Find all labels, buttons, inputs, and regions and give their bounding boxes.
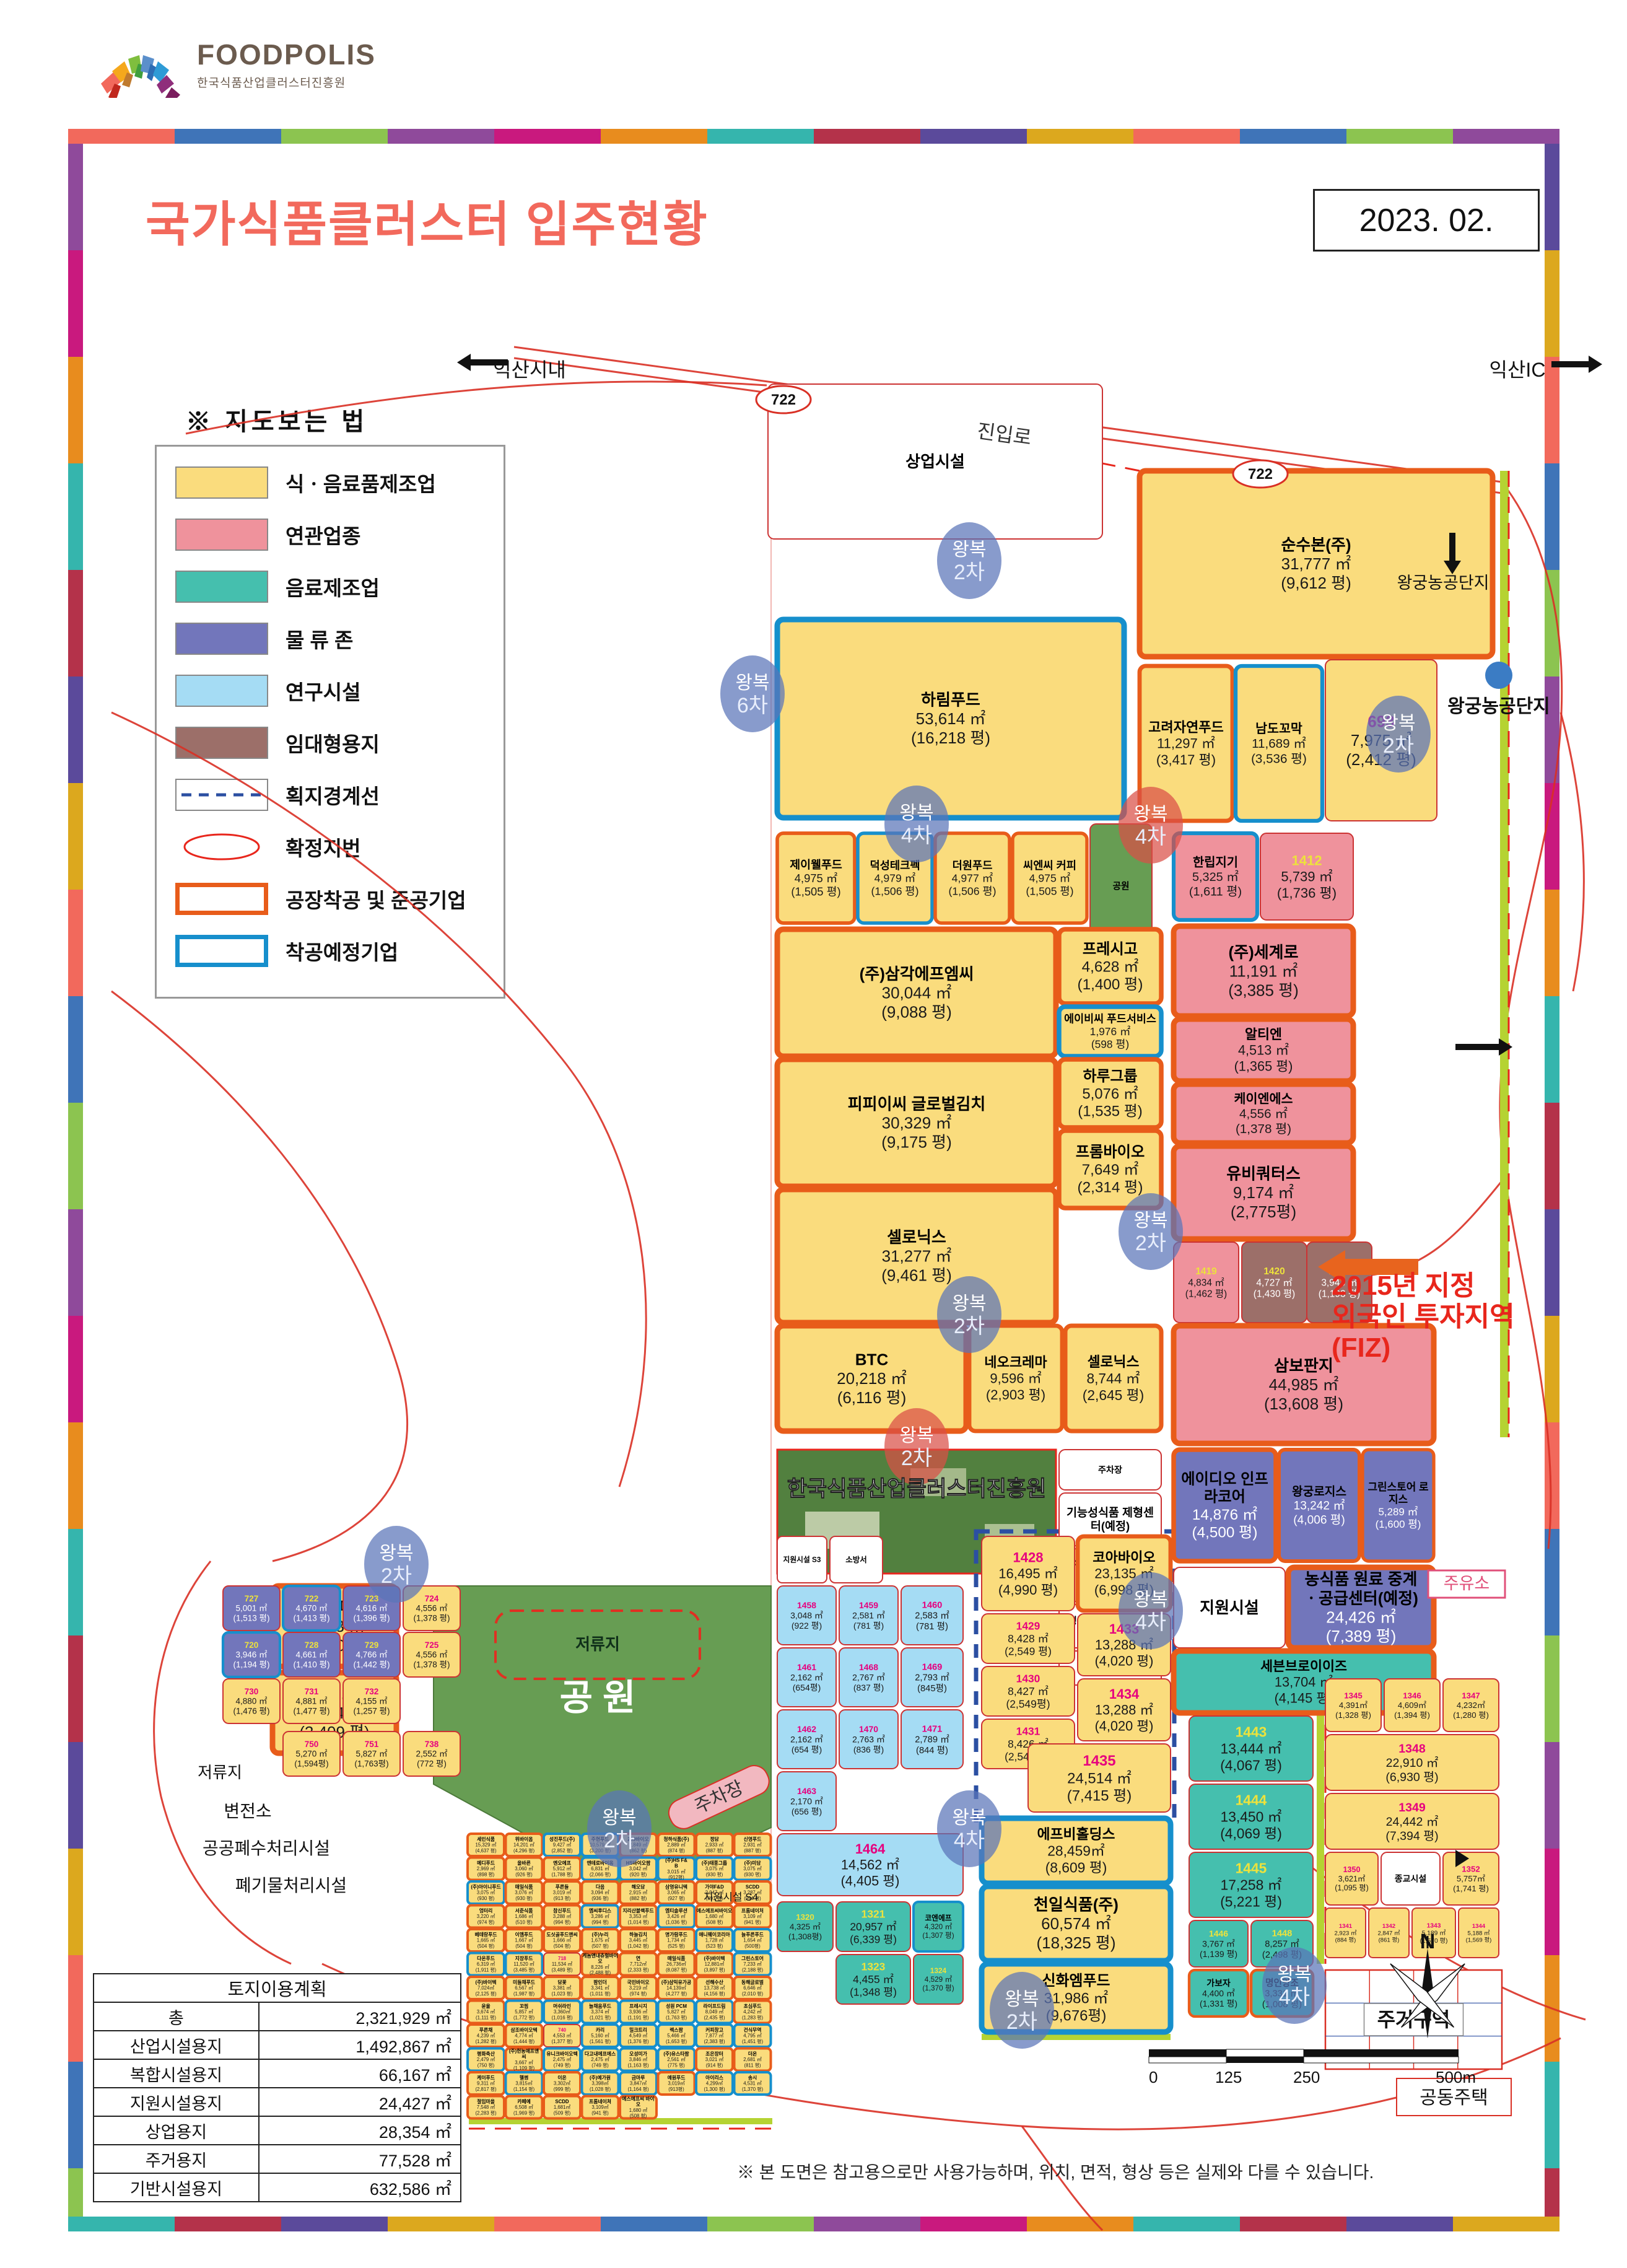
svg-text:5,827 ㎡: 5,827 ㎡ (667, 2009, 686, 2015)
svg-text:4차: 4차 (954, 1829, 985, 1852)
parcel-카리: 카리5,160 ㎡(1,561 평) (582, 2025, 619, 2047)
svg-text:예원푸드: 예원푸드 (668, 2075, 686, 2081)
svg-text:(주)태풍그룹: (주)태풍그룹 (702, 1860, 727, 1866)
parcel-삼영유니텍: 삼영유니텍3,065 ㎡(927 평) (658, 1881, 695, 1904)
parcel-731: 7314,881 ㎡(1,477 평) (283, 1679, 340, 1723)
svg-text:(749 평): (749 평) (554, 2062, 571, 2068)
svg-text:(861 평): (861 평) (1379, 1937, 1400, 1944)
svg-text:4,727 ㎡: 4,727 ㎡ (1256, 1277, 1293, 1288)
svg-text:(1,477 평): (1,477 평) (293, 1707, 329, 1716)
svg-text:(16,218 평): (16,218 평) (911, 729, 990, 747)
svg-text:저류지: 저류지 (198, 1763, 242, 1782)
svg-text:푸른들: 푸른들 (556, 1885, 569, 1890)
map-label: 공공폐수처리시설 (203, 1839, 330, 1858)
svg-text:왕복: 왕복 (379, 1543, 413, 1564)
svg-text:제이웰푸드: 제이웰푸드 (790, 858, 842, 871)
svg-text:(1,741 평): (1,741 평) (1453, 1884, 1489, 1893)
svg-text:(3,417 평): (3,417 평) (1156, 752, 1216, 768)
svg-text:(930 평): (930 평) (515, 1895, 533, 1901)
svg-text:셀로닉스: 셀로닉스 (887, 1228, 946, 1246)
svg-text:셀로닉스: 셀로닉스 (1088, 1354, 1140, 1370)
svg-text:1469: 1469 (922, 1662, 943, 1672)
svg-text:2차: 2차 (1135, 1232, 1166, 1255)
parcel-코엔에프: 코엔에프4,320 ㎡(1,307 평) (914, 1902, 963, 1951)
svg-text:(1,376 평): (1,376 평) (627, 2038, 649, 2044)
svg-text:머쉬라인: 머쉬라인 (553, 2003, 571, 2009)
parcel-1341: 13412,923 ㎡(884 평) (1325, 1908, 1366, 1958)
svg-text:하림푸드: 하림푸드 (921, 690, 980, 709)
parcel-올바른: 올바른3,060 ㎡(926 평) (506, 1858, 543, 1880)
parcel-SCDD: SCDD1,681㎡(509 평) (544, 2096, 580, 2119)
svg-text:그린스토어 로: 그린스토어 로 (1367, 1481, 1428, 1493)
svg-text:(508 평): (508 평) (706, 1919, 723, 1925)
svg-text:4,553 ㎡: 4,553 ㎡ (553, 2033, 572, 2039)
parcel-프롬네이처: 프롬네이처3,109 ㎡(941 평) (735, 1906, 771, 1928)
svg-text:한국식품산업클러스터진흥원: 한국식품산업클러스터진흥원 (787, 1477, 1047, 1501)
svg-text:1344: 1344 (1472, 1923, 1486, 1930)
road-width-badge: 왕복4차 (1119, 787, 1183, 864)
svg-text:(4,637 평): (4,637 평) (475, 1847, 497, 1854)
svg-text:(1,969 평): (1,969 평) (513, 2109, 535, 2116)
svg-text:헬썸: 헬썸 (520, 2075, 528, 2081)
svg-text:5,001 ㎡: 5,001 ㎡ (235, 1604, 268, 1613)
svg-text:(1,378 평): (1,378 평) (413, 1614, 450, 1623)
svg-text:(2,852 평): (2,852 평) (551, 1847, 573, 1854)
svg-text:(2,333 평): (2,333 평) (627, 1966, 649, 1972)
svg-text:한립지기: 한립지기 (1193, 856, 1238, 870)
svg-text:(874 평): (874 평) (668, 1847, 685, 1854)
svg-text:(772 평): (772 평) (417, 1759, 447, 1769)
svg-text:남도꼬막: 남도꼬막 (1255, 722, 1302, 736)
parcel-1458: 14583,048 ㎡(922 평) (777, 1586, 836, 1645)
svg-text:(주)유스타팜: (주)유스타팜 (663, 2051, 689, 2057)
svg-text:4차: 4차 (1279, 1986, 1310, 2009)
parcel-송시: 송시4,531 ㎡(1,370 평) (735, 2072, 771, 2095)
svg-text:4,556 ㎡: 4,556 ㎡ (416, 1650, 448, 1660)
parcel-엠씨후디스: 엠씨후디스3,286 ㎡(994 평) (582, 1906, 619, 1928)
road-width-badge: 왕복2차 (937, 1276, 1001, 1353)
svg-text:(811 평): (811 평) (744, 2062, 761, 2068)
map-label: 주유소 (1428, 1570, 1505, 1598)
svg-text:(2,549 평): (2,549 평) (1005, 1645, 1052, 1658)
parcel-1430: 14308,427 ㎡(2,549평) (982, 1666, 1075, 1716)
parcel-1323: 13234,455 ㎡(1,348 평) (836, 1955, 910, 2004)
svg-text:애니웨이코리아: 애니웨이코리아 (699, 1932, 730, 1938)
svg-text:(1,476 평): (1,476 평) (233, 1707, 269, 1716)
svg-text:5,857 ㎡: 5,857 ㎡ (515, 2009, 533, 2015)
parcel-엠티솔루션: 엠티솔루션3,426 ㎡(1,036 평) (658, 1906, 695, 1928)
svg-text:13,242 ㎡: 13,242 ㎡ (1294, 1499, 1345, 1513)
svg-text:(920 평): (920 평) (630, 1871, 647, 1877)
map-label: 저류지 (198, 1763, 242, 1782)
svg-text:4,239 ㎡: 4,239 ㎡ (477, 2033, 495, 2039)
parcel-이온: 이온3,302㎡(999 평) (544, 2072, 580, 2095)
parcel-(주)유스타팜: (주)유스타팜2,561 ㎡(775 평) (658, 2049, 695, 2071)
svg-text:(2,188 평): (2,188 평) (742, 1966, 764, 1972)
svg-text:2,789 ㎡: 2,789 ㎡ (915, 1735, 949, 1745)
svg-text:(2,488 평): (2,488 평) (590, 1969, 611, 1976)
svg-text:3,019 ㎡: 3,019 ㎡ (553, 1890, 572, 1896)
svg-text:2,933 ㎡: 2,933 ㎡ (705, 1842, 724, 1848)
svg-text:(1,036 평): (1,036 평) (666, 1919, 687, 1925)
svg-text:(781 평): (781 평) (853, 1621, 884, 1631)
map-label: 한국식품산업클러스터진흥원 (787, 1477, 1047, 1501)
svg-text:(914 평): (914 평) (706, 2062, 723, 2068)
svg-text:프레시고: 프레시고 (1083, 941, 1138, 958)
land-table-value: 632,586 ㎡ (259, 2173, 461, 2202)
svg-text:2,475 ㎡: 2,475 ㎡ (591, 2057, 609, 2062)
svg-text:(656 평): (656 평) (792, 1806, 822, 1816)
svg-text:왕복: 왕복 (952, 1808, 986, 1828)
svg-text:(994 평): (994 평) (554, 1919, 571, 1925)
svg-text:조은장터: 조은장터 (705, 2051, 723, 2057)
wanggung-complex-dot (1485, 662, 1512, 689)
svg-text:4,320 ㎡: 4,320 ㎡ (925, 1923, 953, 1931)
svg-text:2,552 ㎡: 2,552 ㎡ (416, 1749, 448, 1759)
parcel-하루그룹: 하루그룹5,076 ㎡(1,535 평) (1059, 1059, 1161, 1127)
svg-text:공 원: 공 원 (560, 1678, 636, 1718)
svg-text:4,155 ㎡: 4,155 ㎡ (355, 1697, 388, 1706)
parcel-애니웨이코리아: 애니웨이코리아1,728 ㎡(523 평) (696, 1929, 733, 1951)
parcel-초심푸드: 초심푸드4,242 ㎡(1,283 평) (735, 2001, 771, 2023)
compass-north-label: N (1406, 1930, 1449, 1954)
svg-text:14,201 ㎡: 14,201 ㎡ (513, 1842, 534, 1848)
svg-text:(525 평): (525 평) (668, 1943, 685, 1949)
svg-text:연: 연 (636, 1955, 640, 1961)
svg-text:5,076 ㎡: 5,076 ㎡ (1082, 1085, 1138, 1102)
svg-text:(999 평): (999 평) (554, 2086, 571, 2092)
svg-text:ㆍ공급센터(예정): ㆍ공급센터(예정) (1304, 1589, 1418, 1608)
svg-text:해오담: 해오담 (632, 1884, 645, 1890)
svg-text:(2,314 평): (2,314 평) (1078, 1180, 1143, 1196)
svg-text:(1,095 평): (1,095 평) (1335, 1884, 1369, 1893)
svg-text:지장푸드: 지장푸드 (515, 1955, 533, 1961)
svg-text:2,561 ㎡: 2,561 ㎡ (667, 2057, 686, 2062)
parcel-커피창고: 커피창고7,877 ㎡(2,383 평) (696, 2025, 733, 2047)
svg-text:(2,435 평): (2,435 평) (704, 2014, 725, 2020)
svg-text:14,562 ㎡: 14,562 ㎡ (841, 1857, 899, 1873)
parcel-722: 7224,670 ㎡(1,413 평) (283, 1586, 340, 1631)
svg-text:1,976 ㎡: 1,976 ㎡ (1090, 1025, 1131, 1038)
svg-text:삼조바이오텍: 삼조바이오텍 (510, 2027, 537, 2033)
svg-text:6,508 ㎡: 6,508 ㎡ (515, 2104, 533, 2110)
parcel-헬썸: 헬썸3,815㎡(1,154 평) (506, 2072, 543, 2095)
cluster-map: 저류지상업시설순수본(주)31,777 ㎡(9,612 평)하림푸드53,614… (0, 0, 1627, 2268)
svg-text:6차: 6차 (737, 694, 768, 717)
svg-text:1448: 1448 (1272, 1929, 1293, 1938)
svg-text:2,583 ㎡: 2,583 ㎡ (915, 1611, 949, 1621)
svg-text:왕복: 왕복 (952, 540, 986, 560)
svg-text:(주)예가원: (주)예가원 (590, 2075, 611, 2081)
svg-text:740: 740 (558, 2028, 567, 2033)
svg-text:5,325 ㎡: 5,325 ㎡ (1192, 870, 1239, 884)
road-width-badge: 왕복2차 (1119, 1193, 1183, 1270)
svg-text:1,728 ㎡: 1,728 ㎡ (705, 1938, 724, 1943)
svg-text:5,289 ㎡: 5,289 ㎡ (1379, 1506, 1418, 1518)
svg-text:(13,608 평): (13,608 평) (1264, 1395, 1343, 1413)
svg-text:3,674 ㎡: 3,674 ㎡ (477, 2009, 495, 2015)
svg-text:24,514 ㎡: 24,514 ㎡ (1067, 1770, 1132, 1787)
parcel-제이웰푸드: 제이웰푸드4,975 ㎡(1,505 평) (777, 833, 855, 923)
svg-text:16,495 ㎡: 16,495 ㎡ (998, 1566, 1058, 1582)
svg-text:(4,405 평): (4,405 평) (841, 1873, 900, 1888)
svg-text:선해수산: 선해수산 (705, 1979, 724, 1986)
svg-text:(936 평): (936 평) (591, 1895, 609, 1901)
svg-text:(1,987 평): (1,987 평) (513, 1990, 535, 1997)
svg-text:(1,772 평): (1,772 평) (513, 2014, 535, 2020)
svg-text:(1,023 평): (1,023 평) (551, 1990, 573, 1997)
svg-text:2,847 ㎡: 2,847 ㎡ (1377, 1930, 1400, 1937)
svg-text:724: 724 (425, 1594, 439, 1603)
svg-text:(1,400 평): (1,400 평) (1078, 976, 1143, 993)
svg-text:왕복: 왕복 (1133, 804, 1167, 825)
parcel-1461: 14612,162 ㎡(654평) (777, 1648, 836, 1707)
svg-text:4차: 4차 (901, 824, 932, 847)
svg-text:(930 평): (930 평) (706, 1871, 723, 1877)
svg-text:(845평): (845평) (917, 1683, 947, 1694)
svg-text:왕복: 왕복 (1381, 713, 1415, 733)
footnote: ※ 본 도면은 참고용으로만 사용가능하며, 위치, 면적, 형상 등은 실제와… (737, 2159, 1374, 2184)
svg-text:(1,736 평): (1,736 평) (1277, 885, 1337, 901)
svg-text:더원푸드: 더원푸드 (953, 859, 993, 872)
svg-text:7,548 ㎡: 7,548 ㎡ (477, 2104, 495, 2110)
parcel-에이비씨 푸드서비스: 에이비씨 푸드서비스1,976 ㎡(598 평) (1059, 1007, 1161, 1056)
parcel-꼬핌: 꼬핌5,857 ㎡(1,772 평) (506, 2001, 543, 2023)
svg-text:(주)바이텍: (주)바이텍 (704, 1955, 725, 1961)
parcel-1434: 143413,288 ㎡(4,020 평) (1078, 1679, 1171, 1741)
parcel-하림푸드: 하림푸드53,614 ㎡(16,218 평) (777, 620, 1124, 818)
svg-text:2차: 2차 (1383, 734, 1414, 758)
svg-text:(9,676평): (9,676평) (1046, 2008, 1107, 2025)
svg-text:동해글로벌: 동해글로벌 (741, 1979, 764, 1986)
parcel-유니크바이오텍: 유니크바이오텍2,475 ㎡(749 평) (544, 2049, 580, 2071)
svg-text:이엠푸드: 이엠푸드 (515, 1932, 533, 1938)
parcel-도싯골푸드앤씨: 도싯골푸드앤씨1,666 ㎡(504 평) (544, 1929, 580, 1951)
svg-text:가보자: 가보자 (1206, 1978, 1231, 1988)
svg-text:(1,451 평): (1,451 평) (742, 2038, 764, 2044)
svg-text:3,015 ㎡: 3,015 ㎡ (667, 1869, 686, 1875)
svg-text:(781 평): (781 평) (916, 1621, 948, 1632)
svg-text:720: 720 (245, 1640, 259, 1650)
svg-text:13,444 ㎡: 13,444 ㎡ (1221, 1740, 1282, 1756)
svg-text:(507 평): (507 평) (591, 1943, 609, 1949)
parcel-밀크트리: 밀크트리4,549 ㎡(1,376 평) (620, 2025, 656, 2047)
parcel-천일식품(주): 천일식품(주)60,574 ㎡(18,325 평) (982, 1886, 1171, 1961)
svg-text:(7,415 평): (7,415 평) (1067, 1788, 1132, 1805)
parcel-1470: 14702,763 ㎡(836 평) (839, 1710, 898, 1769)
svg-text:(1,257 평): (1,257 평) (353, 1707, 390, 1716)
svg-text:네오크레마: 네오크레마 (984, 1355, 1047, 1370)
svg-text:1430: 1430 (1016, 1673, 1040, 1685)
svg-text:11,689 ㎡: 11,689 ㎡ (1252, 736, 1306, 751)
svg-text:2차: 2차 (954, 1315, 985, 1338)
svg-text:1463: 1463 (797, 1786, 816, 1796)
svg-text:1,666 ㎡: 1,666 ㎡ (553, 1938, 572, 1943)
parcel-아이리스: 아이리스4,299㎡(1,300 평) (696, 2072, 733, 2095)
parcel-지원시설: 지원시설 (1174, 1567, 1285, 1648)
land-table-row: 기반시설용지632,586 ㎡ (94, 2173, 461, 2202)
svg-text:722: 722 (305, 1594, 319, 1603)
map-label: 왕궁농공단지 (1447, 696, 1550, 717)
svg-text:커피창고: 커피창고 (705, 2027, 723, 2033)
svg-text:(1,328 평): (1,328 평) (1335, 1710, 1371, 1720)
svg-text:(1,028 평): (1,028 평) (590, 2086, 611, 2092)
svg-text:4,232㎡: 4,232㎡ (1457, 1701, 1485, 1710)
svg-text:4,391㎡: 4,391㎡ (1339, 1701, 1367, 1710)
svg-text:1458: 1458 (797, 1600, 816, 1610)
svg-text:푸른채: 푸른채 (479, 2027, 493, 2033)
parcel-머쉬라인: 머쉬라인3,360㎡(1,016 평) (544, 2001, 580, 2023)
svg-text:(1,283 평): (1,283 평) (742, 2014, 764, 2020)
svg-text:4,299㎡: 4,299㎡ (706, 2081, 723, 2086)
parcel-732: 7324,155 ㎡(1,257 평) (343, 1679, 400, 1723)
parcel-1471: 14712,789 ㎡(844 평) (901, 1710, 963, 1769)
svg-text:왕복: 왕복 (735, 673, 769, 693)
parcel-신영푸드: 신영푸드2,931 ㎡(887 평) (735, 1834, 771, 1856)
svg-text:(4,277 평): (4,277 평) (666, 1990, 687, 1997)
svg-text:(930 평): (930 평) (744, 1871, 761, 1877)
parcel-렉스팜: 렉스팜5,466 ㎡(1,653 평) (658, 2025, 695, 2047)
parcel-1321: 132120,957 ㎡(6,339 평) (836, 1902, 910, 1951)
svg-text:지원시설: 지원시설 (1200, 1598, 1259, 1617)
svg-text:3,374 ㎡: 3,374 ㎡ (591, 2009, 609, 2015)
parcel-(주)삼각에프엠씨: (주)삼각에프엠씨30,044 ㎡(9,088 평) (777, 929, 1056, 1056)
svg-text:3,109㎡: 3,109㎡ (591, 2104, 609, 2110)
svg-text:(3,485 평): (3,485 평) (513, 1966, 535, 1972)
svg-text:(1,164 평): (1,164 평) (627, 2086, 649, 2092)
svg-text:왕궁농공단지: 왕궁농공단지 (1447, 696, 1550, 717)
svg-text:(4,500 평): (4,500 평) (1192, 1524, 1258, 1541)
svg-text:위바이옴: 위바이옴 (515, 1836, 533, 1842)
land-table-row: 주거용지77,528 ㎡ (94, 2145, 461, 2173)
parcel-1459: 14592,581 ㎡(781 평) (839, 1586, 898, 1645)
svg-text:(9,175 평): (9,175 평) (881, 1132, 952, 1151)
svg-text:가야F&D: 가야F&D (705, 1884, 724, 1890)
svg-text:(1,462 평): (1,462 평) (1185, 1289, 1227, 1300)
svg-text:1460: 1460 (922, 1600, 943, 1610)
svg-text:20,957 ㎡: 20,957 ㎡ (850, 1920, 896, 1933)
svg-text:(5,221 평): (5,221 평) (1220, 1893, 1282, 1909)
svg-text:725: 725 (425, 1640, 439, 1650)
svg-text:30,044 ㎡: 30,044 ㎡ (882, 984, 952, 1002)
svg-text:윤율: 윤율 (481, 2003, 490, 2009)
svg-text:주차장: 주차장 (1098, 1465, 1122, 1474)
map-label: 폐기물처리시설 (235, 1876, 347, 1895)
svg-text:3,847㎡: 3,847㎡ (630, 2081, 647, 2086)
svg-text:(2,549평): (2,549평) (1006, 1698, 1050, 1710)
svg-text:1435: 1435 (1083, 1753, 1115, 1769)
svg-text:2,162 ㎡: 2,162 ㎡ (790, 1734, 823, 1744)
svg-text:2,969 ㎡: 2,969 ㎡ (477, 1866, 495, 1872)
svg-text:8,428 ㎡: 8,428 ㎡ (1008, 1632, 1049, 1645)
svg-text:(1,300 평): (1,300 평) (704, 2086, 725, 2092)
svg-text:(994 평): (994 평) (591, 1919, 609, 1925)
svg-text:3,767 ㎡: 3,767 ㎡ (1202, 1938, 1235, 1948)
svg-text:2차: 2차 (901, 1447, 932, 1470)
svg-text:5,270 ㎡: 5,270 ㎡ (295, 1749, 328, 1759)
parcel-조은장터: 조은장터3,021 ㎡(914 평) (696, 2049, 733, 2071)
svg-text:상업시설: 상업시설 (905, 452, 965, 471)
svg-text:베테랑푸드: 베테랑푸드 (475, 1932, 497, 1938)
svg-text:초심푸드: 초심푸드 (744, 2003, 762, 2009)
svg-text:에이디오 인프: 에이디오 인프 (1181, 1471, 1268, 1488)
svg-text:왕복: 왕복 (952, 1294, 986, 1314)
svg-text:농식품 원료 중계: 농식품 원료 중계 (1305, 1570, 1418, 1588)
parcel-(주)예가원: (주)예가원3,398㎡(1,028 평) (582, 2072, 619, 2095)
svg-text:4,529 ㎡: 4,529 ㎡ (925, 1976, 953, 1984)
svg-text:(1,396 평): (1,396 평) (353, 1614, 390, 1623)
parcel-1443: 144313,444 ㎡(4,067 평) (1189, 1716, 1313, 1781)
svg-text:(844 평): (844 평) (916, 1745, 948, 1756)
svg-text:(9,612 평): (9,612 평) (1281, 574, 1351, 592)
svg-text:(504 평): (504 평) (554, 1943, 571, 1949)
svg-text:1,665 ㎡: 1,665 ㎡ (477, 1938, 495, 1943)
map-label: 익산IC (1490, 359, 1546, 381)
road-width-badge: 왕복4차 (884, 786, 949, 862)
svg-text:(1,505 평): (1,505 평) (791, 885, 840, 898)
svg-text:(913평): (913평) (668, 2086, 684, 2092)
parcel-담꽃: 담꽃3,381 ㎡(1,023 평) (544, 1977, 580, 1999)
parcel-1320: 13204,325 ㎡(1,308평) (777, 1902, 833, 1951)
parcel-서준식품: 서준식품1,686 ㎡(510 평) (506, 1906, 543, 1928)
svg-text:서준식품: 서준식품 (515, 1907, 533, 1914)
svg-text:케이엔에스: 케이엔에스 (1234, 1092, 1293, 1106)
road-width-badge: 왕복6차 (720, 655, 785, 732)
svg-text:723: 723 (365, 1594, 379, 1603)
parcel-카페예: 카페예6,508 ㎡(1,969 평) (506, 2096, 543, 2119)
parcel-720: 7203,946 ㎡(1,194 평) (223, 1632, 280, 1677)
land-table-row: 총2,321,929 ㎡ (94, 2002, 461, 2031)
svg-text:5,160 ㎡: 5,160 ㎡ (591, 2033, 609, 2039)
svg-text:3,946 ㎡: 3,946 ㎡ (235, 1650, 268, 1660)
map-label: 왕궁농공단지 (1397, 574, 1489, 592)
svg-text:24,426 ㎡: 24,426 ㎡ (1326, 1608, 1396, 1626)
svg-text:(1,109 평): (1,109 평) (513, 2065, 535, 2071)
parcel-엔오에프: 엔오에프5,912 ㎡(1,788 평) (544, 1858, 580, 1880)
direction-arrow-icon (1551, 356, 1602, 373)
parcel-가보자: 가보자4,400 ㎡(1,331 평) (1189, 1970, 1248, 2016)
parcel-절임마을: 절임마을7,548 ㎡(2,283 평) (468, 2096, 504, 2119)
parcel-1344: 13445,188 ㎡(1,569 평) (1459, 1908, 1499, 1958)
svg-text:엔오에프: 엔오에프 (553, 1860, 571, 1866)
svg-text:2015년 지정: 2015년 지정 (1332, 1271, 1475, 1301)
svg-text:(750 평): (750 평) (478, 2062, 495, 2068)
svg-text:유비쿼터스: 유비쿼터스 (1226, 1164, 1301, 1183)
svg-text:(884 평): (884 평) (1335, 1937, 1356, 1944)
svg-text:왕복: 왕복 (899, 1425, 933, 1446)
svg-text:프롬네이쳐: 프롬네이쳐 (589, 2098, 611, 2104)
svg-text:1324: 1324 (930, 1967, 947, 1975)
svg-text:4,774 ㎡: 4,774 ㎡ (515, 2033, 533, 2039)
svg-text:프레시지: 프레시지 (629, 2003, 647, 2009)
svg-text:게놈앤내츄럴바이: 게놈앤내츄럴바이 (582, 1952, 618, 1958)
parcel-1429: 14298,428 ㎡(2,549 평) (982, 1614, 1075, 1663)
parcel-1349: 134924,442 ㎡(7,394 평) (1325, 1793, 1499, 1849)
parcel-프레시고: 프레시고4,628 ㎡(1,400 평) (1059, 929, 1161, 1004)
road-width-badge: 왕복4차 (1262, 1947, 1327, 2024)
svg-text:2,170 ㎡: 2,170 ㎡ (790, 1796, 823, 1806)
road-width-badge: 왕복2차 (937, 522, 1001, 599)
svg-text:12,881㎡: 12,881㎡ (705, 1961, 725, 1967)
svg-text:늘채움푸드: 늘채움푸드 (589, 2003, 611, 2009)
land-table-label: 총 (94, 2002, 259, 2031)
parcel-728: 7284,661 ㎡(1,410 평) (283, 1632, 340, 1677)
svg-text:(1,014 평): (1,014 평) (627, 1919, 649, 1925)
svg-text:4,513 ㎡: 4,513 ㎡ (1238, 1043, 1289, 1058)
svg-text:5,466 ㎡: 5,466 ㎡ (667, 2033, 686, 2039)
land-table-label: 지원시설용지 (94, 2088, 259, 2116)
svg-text:국민바이오: 국민바이오 (627, 1979, 650, 1986)
